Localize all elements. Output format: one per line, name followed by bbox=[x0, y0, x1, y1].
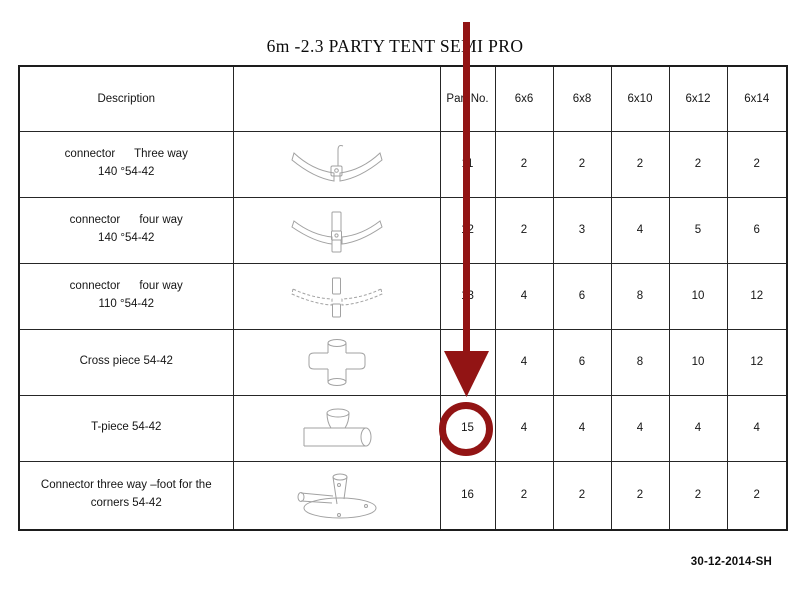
qty-cell: 10 bbox=[669, 329, 727, 395]
description-cell: connector four way 110 °54-42 bbox=[19, 263, 233, 329]
description-line2: corners 54-42 bbox=[22, 495, 231, 513]
description-cell: connector four way 140 °54-42 bbox=[19, 197, 233, 263]
four-way-connector-110-drawing-icon bbox=[236, 272, 438, 320]
part-no-cell: 14 bbox=[440, 329, 495, 395]
part-no-cell: 12 bbox=[440, 197, 495, 263]
qty-cell: 12 bbox=[727, 329, 787, 395]
qty-cell: 2 bbox=[495, 461, 553, 530]
qty-cell: 4 bbox=[495, 263, 553, 329]
description-line1: T-piece 54-42 bbox=[22, 419, 231, 437]
table-row: connector Three way 140 °54-42 11 2 2 2 … bbox=[19, 131, 787, 197]
part-no-cell: 11 bbox=[440, 131, 495, 197]
header-description: Description bbox=[19, 66, 233, 131]
table-row: connector four way 140 °54-42 12 2 3 4 5… bbox=[19, 197, 787, 263]
header-part-no: Part No. bbox=[440, 66, 495, 131]
description-cell: Connector three way –foot for the corner… bbox=[19, 461, 233, 530]
part-no-cell: 16 bbox=[440, 461, 495, 530]
parts-table: Description Part No. 6x6 6x8 6x10 6x12 6… bbox=[18, 65, 788, 531]
qty-cell: 2 bbox=[727, 461, 787, 530]
description-cell: T-piece 54-42 bbox=[19, 395, 233, 461]
three-way-connector-140-drawing-icon bbox=[236, 140, 438, 188]
header-illustration bbox=[233, 66, 440, 131]
t-piece-drawing-icon bbox=[236, 404, 438, 452]
qty-cell: 5 bbox=[669, 197, 727, 263]
qty-cell: 4 bbox=[611, 395, 669, 461]
corner-foot-connector-drawing-icon bbox=[236, 469, 438, 521]
header-6x14: 6x14 bbox=[727, 66, 787, 131]
table-row: T-piece 54-42 15 4 4 4 4 4 bbox=[19, 395, 787, 461]
qty-cell: 2 bbox=[669, 131, 727, 197]
illustration-cell bbox=[233, 197, 440, 263]
table-row: Cross piece 54-42 14 4 6 8 10 12 bbox=[19, 329, 787, 395]
qty-cell: 4 bbox=[669, 395, 727, 461]
qty-cell: 2 bbox=[727, 131, 787, 197]
description-line1: connector four way bbox=[22, 278, 231, 296]
table-header-row: Description Part No. 6x6 6x8 6x10 6x12 6… bbox=[19, 66, 787, 131]
illustration-cell bbox=[233, 329, 440, 395]
description-line2: 140 °54-42 bbox=[22, 230, 231, 248]
qty-cell: 4 bbox=[727, 395, 787, 461]
page-title: 6m -2.3 PARTY TENT SEMI PRO bbox=[0, 36, 790, 57]
qty-cell: 2 bbox=[669, 461, 727, 530]
description-line1: Connector three way –foot for the bbox=[22, 477, 231, 495]
document-code: 30-12-2014-SH bbox=[691, 556, 772, 568]
description-line2: 110 °54-42 bbox=[22, 296, 231, 314]
qty-cell: 8 bbox=[611, 329, 669, 395]
illustration-cell bbox=[233, 131, 440, 197]
qty-cell: 6 bbox=[553, 329, 611, 395]
illustration-cell bbox=[233, 395, 440, 461]
description-line1: connector four way bbox=[22, 212, 231, 230]
qty-cell: 4 bbox=[553, 395, 611, 461]
header-6x8: 6x8 bbox=[553, 66, 611, 131]
qty-cell: 4 bbox=[495, 329, 553, 395]
qty-cell: 6 bbox=[727, 197, 787, 263]
illustration-cell bbox=[233, 461, 440, 530]
header-6x6: 6x6 bbox=[495, 66, 553, 131]
qty-cell: 2 bbox=[495, 131, 553, 197]
description-cell: Cross piece 54-42 bbox=[19, 329, 233, 395]
qty-cell: 2 bbox=[553, 461, 611, 530]
qty-cell: 12 bbox=[727, 263, 787, 329]
illustration-cell bbox=[233, 263, 440, 329]
table-row: connector four way 110 °54-42 13 4 6 8 1… bbox=[19, 263, 787, 329]
four-way-connector-140-drawing-icon bbox=[236, 206, 438, 254]
qty-cell: 8 bbox=[611, 263, 669, 329]
header-6x12: 6x12 bbox=[669, 66, 727, 131]
part-no-cell: 15 bbox=[440, 395, 495, 461]
description-cell: connector Three way 140 °54-42 bbox=[19, 131, 233, 197]
qty-cell: 4 bbox=[495, 395, 553, 461]
qty-cell: 2 bbox=[495, 197, 553, 263]
header-6x10: 6x10 bbox=[611, 66, 669, 131]
qty-cell: 10 bbox=[669, 263, 727, 329]
qty-cell: 2 bbox=[611, 461, 669, 530]
cross-piece-drawing-icon bbox=[236, 336, 438, 388]
qty-cell: 3 bbox=[553, 197, 611, 263]
description-line1: connector Three way bbox=[22, 146, 231, 164]
table-row: Connector three way –foot for the corner… bbox=[19, 461, 787, 530]
qty-cell: 2 bbox=[553, 131, 611, 197]
part-no-cell: 13 bbox=[440, 263, 495, 329]
qty-cell: 4 bbox=[611, 197, 669, 263]
description-line1: Cross piece 54-42 bbox=[22, 353, 231, 371]
description-line2: 140 °54-42 bbox=[22, 164, 231, 182]
qty-cell: 2 bbox=[611, 131, 669, 197]
qty-cell: 6 bbox=[553, 263, 611, 329]
